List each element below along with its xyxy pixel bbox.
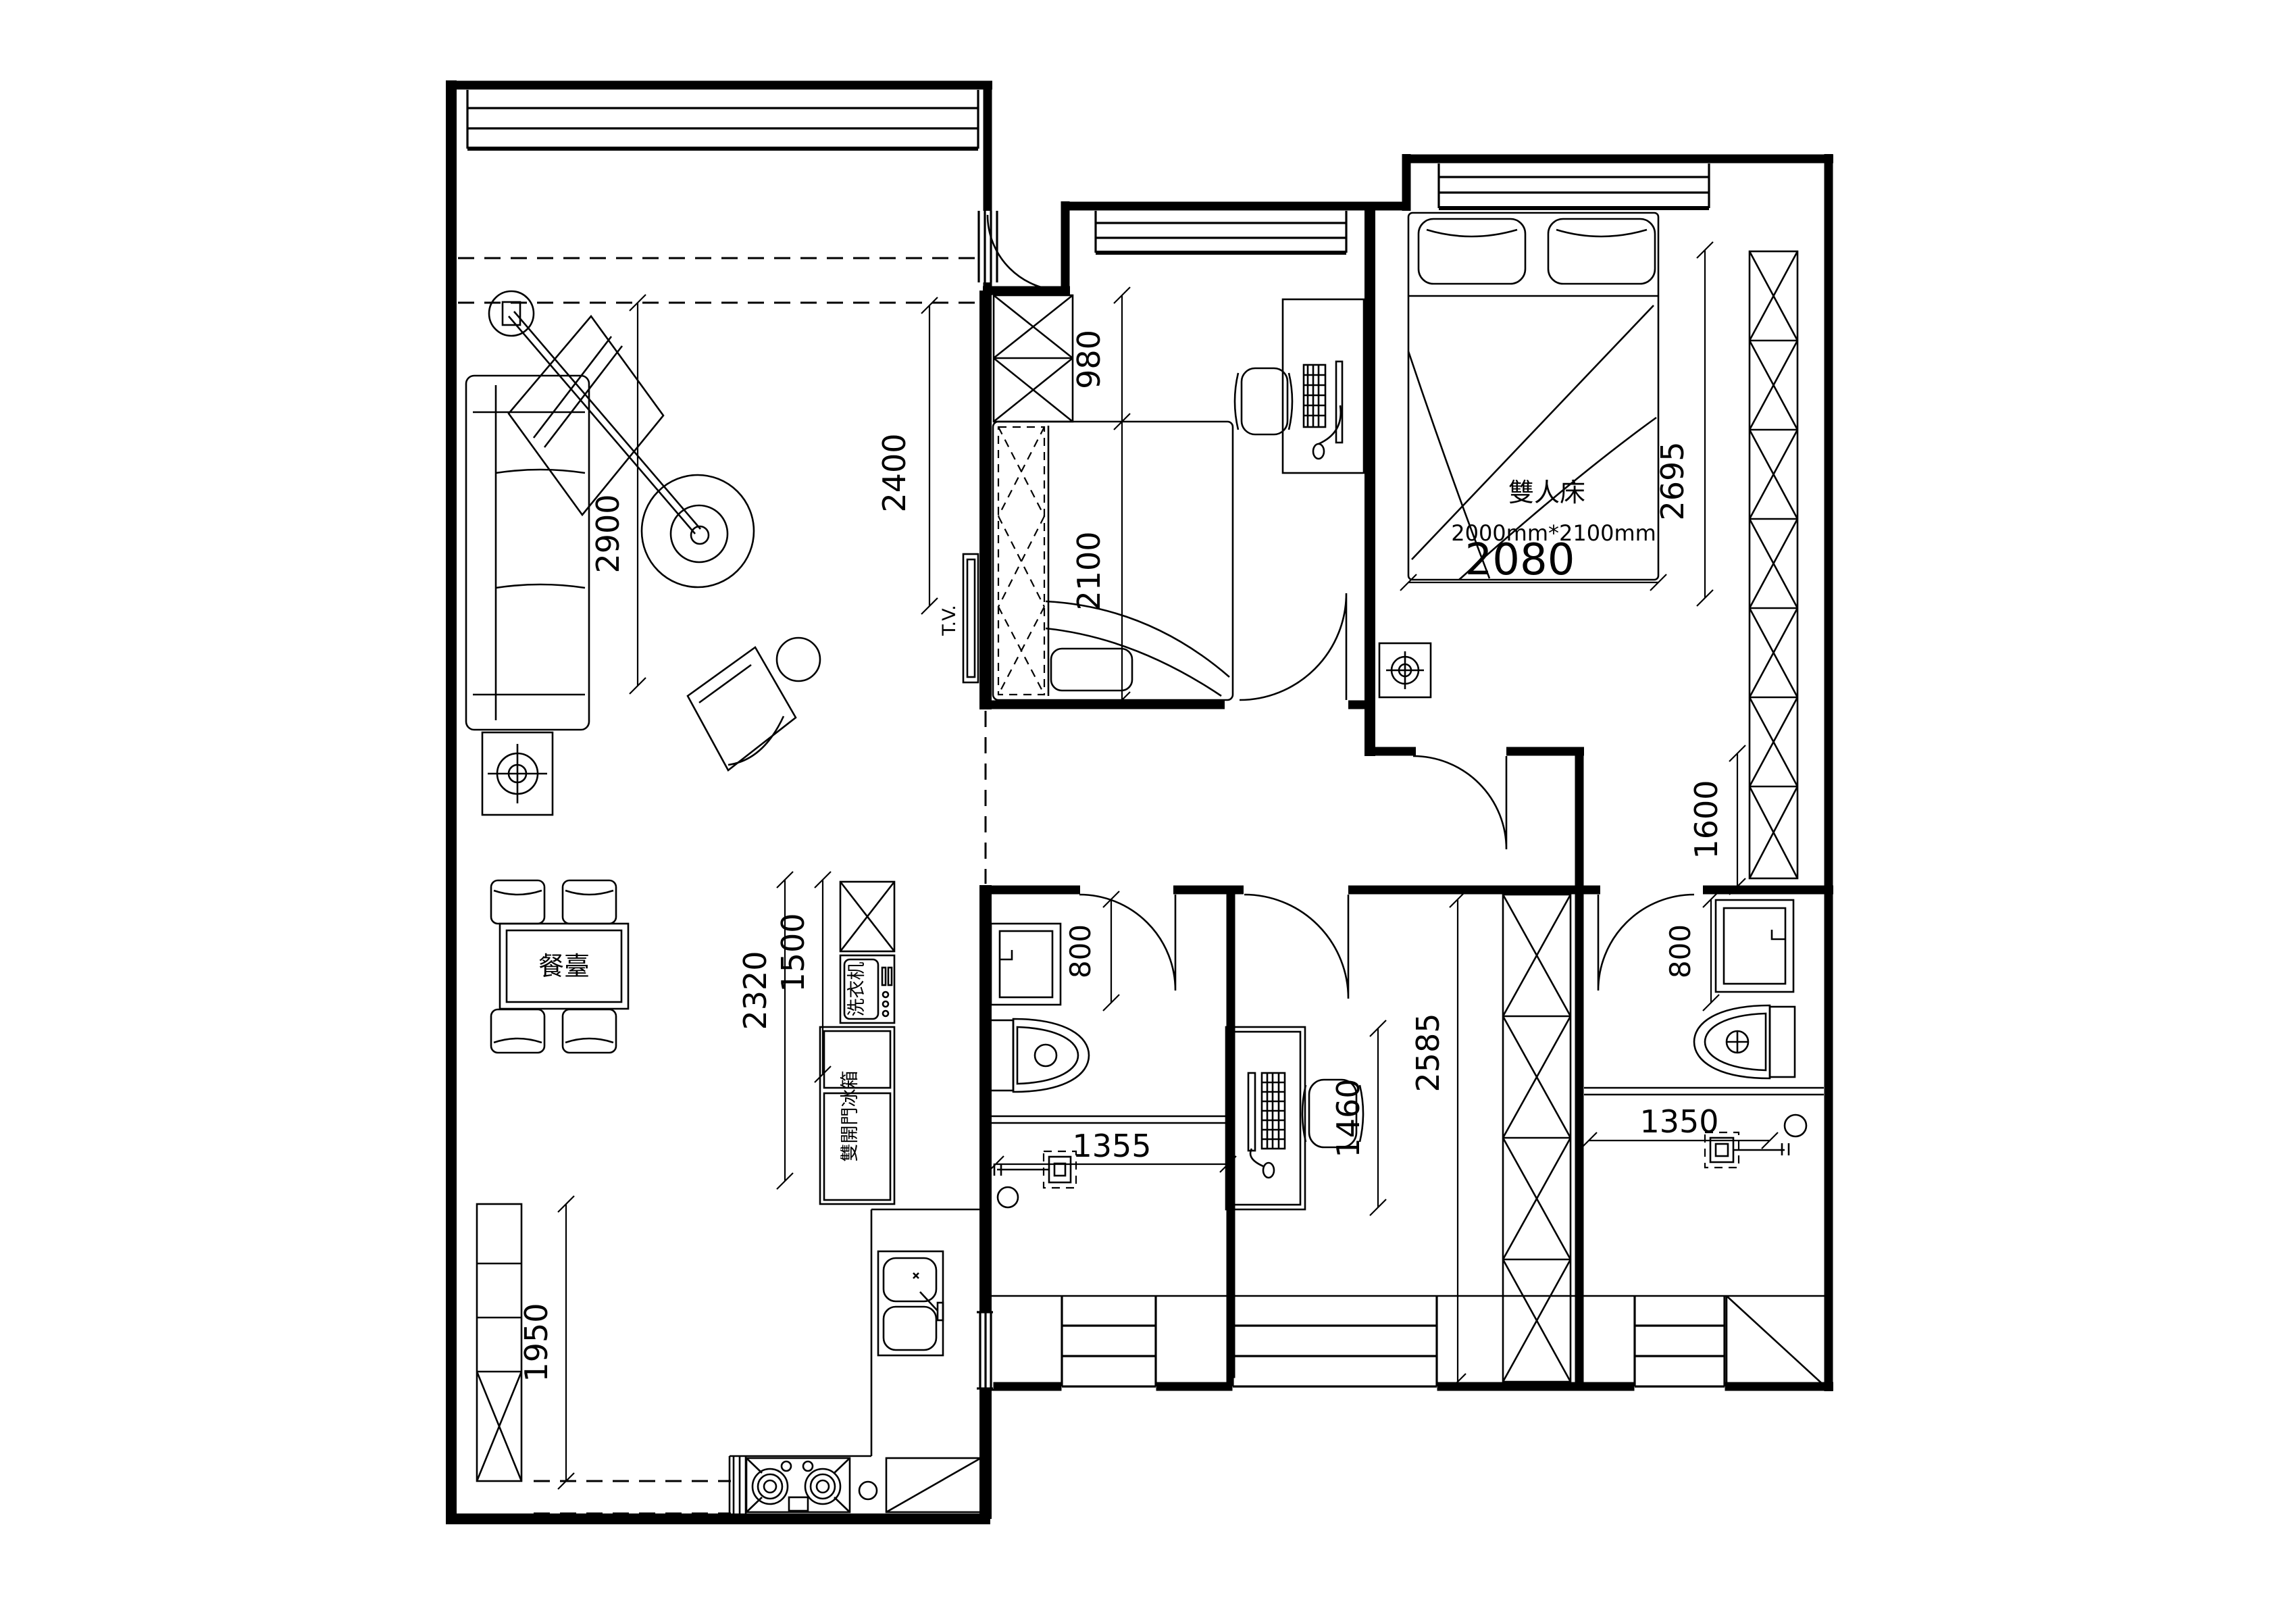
dim-bed2-length: 2100 [1071,531,1107,610]
bedroom2-desk [1235,299,1364,473]
bath1-toilet [988,1019,1089,1092]
appliance-cabinet [840,882,894,951]
bedroom2-window [1096,211,1346,253]
sofa [466,376,589,730]
balcony-window [467,90,978,149]
wall-tv [963,554,978,682]
dim-study-depth: 2585 [1410,1013,1446,1092]
dim-bath2-width: 1350 [1639,1103,1718,1140]
dim-appliance-total: 2320 [737,951,773,1030]
stove [746,1458,850,1512]
dim-master-lower: 1600 [1688,780,1725,859]
master-nightstand [1379,643,1431,697]
dim-bath1-width: 1355 [1072,1128,1151,1164]
bath1-sink [991,924,1061,1005]
exterior-walls [446,80,1833,1524]
bath2-toilet [1694,1005,1795,1078]
washing-machine-label: 洗衣机 [846,962,867,1017]
sofa-side-table [482,732,553,815]
dim-living-depth: 2900 [590,494,626,573]
master-bed-label: 雙人床 [1508,478,1585,507]
study-desk [1226,1027,1305,1209]
corner-tv-cabinet [509,316,663,515]
master-wardrobe [1750,251,1797,878]
dim-master-depth: 2695 [1654,441,1691,520]
south-windows [1062,1296,1825,1394]
study-wardrobe [1503,895,1571,1382]
dimension-lines [558,242,1778,1489]
master-window [1439,164,1709,208]
dining-table-label: 餐臺 [538,951,590,981]
bath2-sink [1716,900,1793,992]
floor-plan-canvas: T.V. 餐臺 洗衣机 雙開門冰箱 [0,0,2296,1602]
kitchen-sink [878,1251,943,1355]
entry-niche-window [979,211,1063,291]
dim-appliance-upper: 1500 [775,913,811,992]
doors [1079,593,1694,999]
foyer-cabinet [477,1204,521,1481]
floor-plan-drawing: T.V. 餐臺 洗衣机 雙開門冰箱 [0,0,2296,1602]
dim-wardrobe2: 980 [1071,330,1107,389]
bedroom2-wardrobe [994,295,1073,422]
armchair [688,638,820,770]
dim-study-desk-span: 1460 [1330,1078,1367,1157]
dim-foyer-cabinet: 1950 [518,1303,555,1382]
dim-bath2-door: 800 [1664,924,1697,978]
dim-bath1-door: 800 [1064,924,1097,978]
dim-master-bed-width: 2080 [1465,535,1575,585]
fridge-label: 雙開門冰箱 [840,1071,861,1162]
dim-tv-wall: 2400 [876,433,913,512]
bedroom2-bed [993,422,1233,700]
kitchen-corner-cabinet [859,1458,981,1512]
tv-label: T.V. [939,605,960,636]
kitchen-service-window [977,1312,993,1388]
